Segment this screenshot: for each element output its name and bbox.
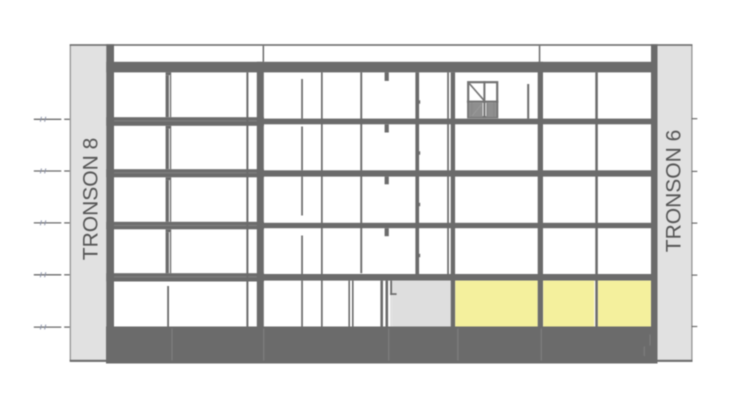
svg-text:TRONSON 8: TRONSON 8 [80,138,103,261]
svg-text:TRONSON 6: TRONSON 6 [663,130,686,253]
